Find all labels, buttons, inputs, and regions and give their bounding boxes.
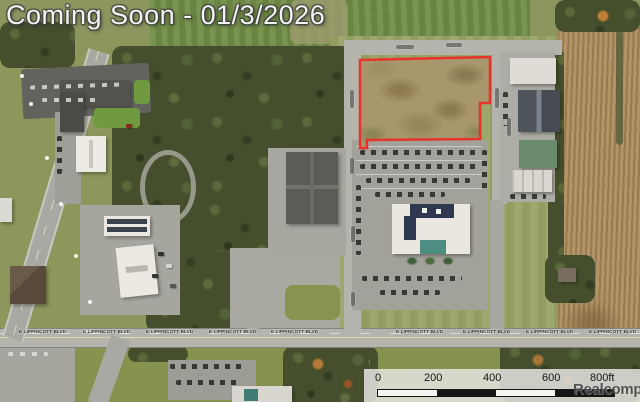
car-row [380, 290, 440, 295]
car-row [42, 98, 100, 102]
roof-teal-section [244, 389, 258, 401]
car-row [57, 136, 62, 174]
street-label-lippincott: E LIPPINCOTT BLVD [209, 330, 256, 335]
route-marker [45, 156, 49, 160]
scale-segment [437, 390, 496, 396]
road-label-blur [350, 90, 354, 108]
route-marker [29, 102, 33, 106]
car-row [360, 164, 478, 169]
roof-teal-section [420, 240, 446, 254]
road-access-east [490, 200, 504, 330]
building-bigbox [392, 204, 470, 254]
roof-detail [126, 265, 149, 273]
route-marker [88, 300, 92, 304]
aerial-map: E LIPPINCOTT BLVD E LIPPINCOTT BLVD E LI… [0, 0, 640, 402]
realcomp-watermark: Realcomp [573, 381, 640, 398]
roof-detail [89, 140, 93, 168]
car [126, 124, 132, 128]
car-row [176, 380, 242, 385]
grass-island [285, 285, 340, 320]
scale-segment [496, 390, 555, 396]
building-house [10, 266, 46, 304]
building-white-right [510, 58, 556, 84]
road-median-line [0, 337, 640, 338]
car [166, 264, 172, 268]
street-label-lippincott: E LIPPINCOTT BLVD [19, 330, 66, 335]
scale-segment [378, 390, 437, 396]
roof-navy-section [410, 204, 454, 218]
building-green-roof [519, 140, 557, 168]
car-row [510, 194, 546, 199]
solar-stripe [107, 219, 147, 224]
building-small-white [0, 198, 12, 222]
lawn-patch [134, 80, 150, 104]
street-label-lippincott: E LIPPINCOTT BLVD [271, 330, 318, 335]
road-label-blur [507, 118, 511, 136]
car-row [366, 178, 470, 183]
street-label-lippincott: E LIPPINCOTT BLVD [526, 330, 573, 335]
road-label-blur [351, 226, 355, 242]
car-row [356, 185, 361, 255]
building-roof-in-trees [558, 268, 576, 282]
car-row [360, 150, 478, 155]
car-row [8, 352, 48, 356]
rooftop-unit [436, 209, 441, 214]
building-restaurant [76, 136, 106, 172]
road-label-blur [350, 158, 354, 174]
rooftop-unit [422, 208, 427, 213]
road-label-blur [396, 45, 414, 49]
route-marker [74, 254, 78, 258]
street-label-lippincott: E LIPPINCOTT BLVD [83, 330, 130, 335]
hedgerow [616, 30, 623, 145]
scale-tick-600: 600 [542, 372, 560, 384]
scale-tick-0: 0 [375, 372, 381, 384]
building-gas-station [115, 244, 158, 298]
road-label-blur [446, 43, 462, 47]
car-row [482, 150, 487, 190]
landscaping-shrubs [402, 256, 460, 266]
roof-ridge [310, 152, 314, 224]
car-row [375, 192, 445, 197]
bottom-left-pavement [0, 348, 75, 402]
road-label-blur [495, 88, 499, 108]
road-label-blur [351, 292, 355, 306]
building-office [286, 152, 338, 224]
street-label-lippincott: E LIPPINCOTT BLVD [463, 330, 510, 335]
building-barn [518, 90, 560, 132]
street-label-lippincott: E LIPPINCOTT BLVD [396, 330, 443, 335]
scale-tick-200: 200 [424, 372, 442, 384]
car-row [170, 364, 242, 369]
route-marker [59, 202, 63, 206]
building-canopy-row [512, 170, 552, 192]
street-label-lippincott: E LIPPINCOTT BLVD [146, 330, 193, 335]
roof-navy-section [404, 216, 416, 240]
car [170, 284, 176, 288]
scale-tick-400: 400 [483, 372, 501, 384]
autumn-trees [585, 2, 640, 32]
autumn-trees [300, 350, 370, 395]
street-label-lippincott: E LIPPINCOTT BLVD [589, 330, 636, 335]
route-marker [20, 74, 24, 78]
coming-soon-banner: Coming Soon - 01/3/2026 [6, 0, 325, 31]
lawn-patch [94, 108, 140, 128]
building-bottom-partial [232, 386, 292, 402]
car [152, 274, 158, 278]
gas-canopy [104, 216, 150, 236]
solar-stripe [107, 227, 147, 232]
car-row [362, 276, 462, 281]
car [158, 252, 164, 256]
